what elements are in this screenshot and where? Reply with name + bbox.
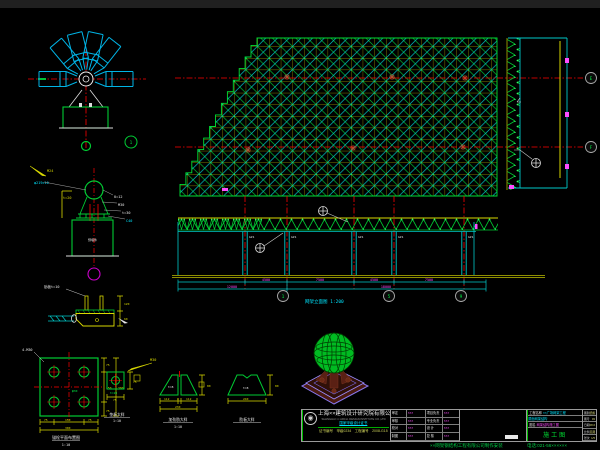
rib-thickness: t=8: [243, 386, 249, 390]
plate-detail: M30 t=20 75 75 垫板大样 1:10: [104, 358, 156, 423]
bubble-label: 5: [388, 294, 391, 300]
sign-label: 制图: [391, 433, 407, 441]
cert-no: 甲级0234: [336, 429, 351, 434]
svg-text:GZ1: GZ1: [468, 235, 474, 239]
mesh-area: [180, 38, 497, 196]
svg-text:75: 75: [44, 418, 48, 422]
right-grid-bubbles: E F: [586, 73, 597, 153]
dim-text: 75: [133, 380, 137, 384]
dim-text: 120: [124, 302, 130, 306]
company-name-en: SHANGHAI ×× ARCH. DESIGN INSTITUTE CO.,L…: [322, 417, 386, 421]
svg-text:75: 75: [88, 418, 92, 422]
column-labels: GZ1 GZ1 GZ1 GZ1 GZ1: [249, 235, 474, 239]
node-pedestal: [63, 107, 108, 128]
dim-text: 75: [113, 398, 117, 402]
proj-no: 2008-G15: [372, 429, 388, 434]
anchor-leader-label: 4-M30: [22, 348, 33, 352]
detail-caption: 锚栓平面布置图: [52, 434, 80, 440]
rib-single-detail: t=8 240 80 肋板大样: [228, 375, 279, 423]
section-truss: [508, 38, 520, 190]
detail-scale: 1:10: [62, 443, 70, 447]
svg-text:80: 80: [207, 384, 211, 388]
svg-text:150: 150: [65, 418, 71, 422]
sign-value: ×××: [407, 433, 426, 441]
svg-text:C40: C40: [126, 219, 132, 223]
side-value: 见图: [590, 429, 596, 434]
ground-line: [172, 276, 545, 278]
elevation-columns: [243, 232, 466, 277]
bubble-label: 9: [460, 294, 463, 300]
support-detail: M24 φ219×10 t=20 δ=12 M30 t=30 C40 预埋件: [30, 166, 132, 280]
cert-numbers-row: 证书编号 甲级0234 工程编号 2008-G15: [318, 427, 389, 434]
project-value2: 屋面网架结构: [528, 416, 547, 421]
svg-text:GZ1: GZ1: [291, 235, 297, 239]
titleblock-drawing-info: 工程名称××广场网架工程 屋面网架结构 图名网架结构施工图 施工图: [527, 410, 583, 441]
svg-text:预埋件: 预埋件: [88, 237, 97, 242]
svg-text:7500: 7500: [316, 278, 324, 282]
support-marker-circle: [88, 268, 100, 280]
space-frame-plan: [180, 38, 497, 196]
svg-text:112: 112: [164, 397, 170, 401]
ball-node-3d: [302, 333, 368, 404]
svg-text:230: 230: [175, 405, 181, 409]
side-label: 张次: [584, 435, 590, 440]
sign-value: ×××: [407, 425, 426, 433]
project-value: ××广场网架工程: [543, 410, 566, 415]
svg-text:18000: 18000: [381, 285, 391, 289]
anchor-plan-detail: 4-M30 φ30 75 150 75 300 75 150 75 300 锚栓…: [22, 348, 124, 447]
svg-text:M30: M30: [118, 203, 124, 207]
detail-caption: 肋板大样: [239, 417, 254, 422]
svg-text:φ219×10: φ219×10: [34, 181, 49, 185]
svg-text:GZ1: GZ1: [398, 235, 404, 239]
svg-text:t=30: t=30: [122, 211, 130, 215]
plan-support-tick: [222, 188, 228, 191]
svg-text:4500: 4500: [262, 278, 270, 282]
side-value: 1/5: [591, 435, 595, 440]
plate-note: t=20: [110, 391, 117, 395]
svg-text:M24: M24: [47, 169, 53, 173]
bubble-label: 1: [282, 294, 285, 300]
section-symbol: [532, 159, 541, 168]
side-value: 03: [592, 416, 595, 421]
sign-value: ×××: [443, 425, 461, 433]
dimension-lines: [178, 280, 486, 292]
side-label: 图号: [584, 416, 590, 421]
title-block: ◉ 上海××建筑设计研究院有限公司 SHANGHAI ×× ARCH. DESI…: [301, 409, 597, 442]
svg-text:GZ1: GZ1: [358, 235, 364, 239]
detail-scale: 1:10: [174, 425, 182, 429]
svg-text:4: 4: [177, 397, 179, 401]
anchor-center-note: φ30: [72, 389, 78, 393]
svg-text:112: 112: [186, 397, 192, 401]
signature-chip: [505, 435, 518, 439]
detail-caption: 加劲肋大样: [169, 417, 188, 422]
rib-dim-lines: [160, 375, 205, 412]
footer-maker-text: ××网架钢结构工程有限公司制作安装: [430, 443, 503, 449]
cad-drawing-canvas: E F GZ1 GZ1 GZ1 GZ1 GZ1 4500 7500 4500 7…: [0, 0, 600, 450]
drawing-value: 网架结构施工图: [537, 422, 559, 427]
side-value: 08.6: [590, 422, 595, 427]
svg-text:12000: 12000: [227, 285, 237, 289]
sign-value: ×××: [443, 418, 461, 426]
sign-label: 项目负责: [426, 410, 443, 418]
sign-label: 设 计: [426, 425, 443, 433]
detail-scale: 1:10: [113, 419, 121, 423]
drawing-svg: E F GZ1 GZ1 GZ1 GZ1 GZ1 4500 7500 4500 7…: [0, 0, 600, 450]
dim-text: 60: [124, 317, 128, 321]
cert-no-label: 证书编号: [319, 429, 333, 434]
titleblock-blank-cell: [460, 410, 527, 441]
project-label: 工程名称: [528, 410, 543, 415]
svg-text:4500: 4500: [370, 278, 378, 282]
base-plate-label: 肋板t=10: [44, 284, 59, 289]
sign-label: 校对: [391, 425, 407, 433]
sign-value: ×××: [443, 433, 461, 441]
sign-label: 复 核: [426, 433, 443, 441]
titleblock-signature-grid: 审定×××项目负责××× 审核×××专业负责××× 校对×××设 计××× 制图…: [391, 410, 461, 441]
titleblock-company-section: ◉ 上海××建筑设计研究院有限公司 SHANGHAI ×× ARCH. DESI…: [302, 410, 391, 441]
dim-text: 80: [275, 384, 279, 388]
svg-text:δ=12: δ=12: [114, 195, 122, 199]
rib-thickness: t=8: [168, 385, 174, 389]
detail-caption: 垫板大样: [109, 412, 124, 417]
svg-text:t=20: t=20: [63, 196, 71, 200]
titleblock-side-column: 图别结施 图号03 日期08.6 比例见图 张次1/5: [583, 410, 596, 441]
sign-value: ×××: [407, 418, 426, 426]
company-name-cn: 上海××建筑设计研究院有限公司: [318, 411, 389, 417]
elevation-dims-row2: 12000 18000: [227, 285, 391, 289]
footer-phone-text: 电话:021-56××××××: [527, 443, 567, 449]
sign-value: ×××: [407, 410, 426, 418]
elevation-dims-row1: 4500 7500 4500 7500: [262, 278, 433, 282]
sign-label: 专业负责: [426, 418, 443, 426]
elevation-view: GZ1 GZ1 GZ1 GZ1 GZ1 4500 7500 4500 7500 …: [172, 207, 545, 306]
svg-text:300: 300: [65, 426, 71, 430]
elevation-caption: 网架立面图 1:200: [305, 298, 344, 305]
sign-label: 审定: [391, 410, 407, 418]
bubble-label: 1: [130, 140, 133, 145]
sign-label: 审核: [391, 418, 407, 426]
proj-no-label: 工程编号: [355, 429, 369, 434]
bubble-label: F: [590, 145, 593, 151]
dim-text: 240: [243, 397, 249, 401]
stage-label: 施工图: [528, 428, 582, 441]
plate-leader-label: M30: [150, 358, 156, 362]
rib-pair-detail: t=8 112 4 112 230 80 加劲肋大样 1:10: [160, 371, 211, 429]
drawing-label: 图名: [528, 422, 536, 427]
base-plate-detail: 肋板t=10 120 60: [44, 284, 130, 326]
sign-value: ×××: [443, 410, 461, 418]
company-logo: ◉: [304, 412, 317, 425]
side-section: [507, 38, 569, 190]
svg-text:GZ1: GZ1: [249, 235, 255, 239]
bubble-label: E: [590, 76, 593, 82]
company-cert: 国家甲级设计证书: [318, 421, 389, 426]
svg-text:7500: 7500: [425, 278, 433, 282]
side-value: 结施: [590, 410, 596, 415]
node-detail: 1: [28, 31, 146, 150]
svg-text:75: 75: [106, 363, 110, 367]
